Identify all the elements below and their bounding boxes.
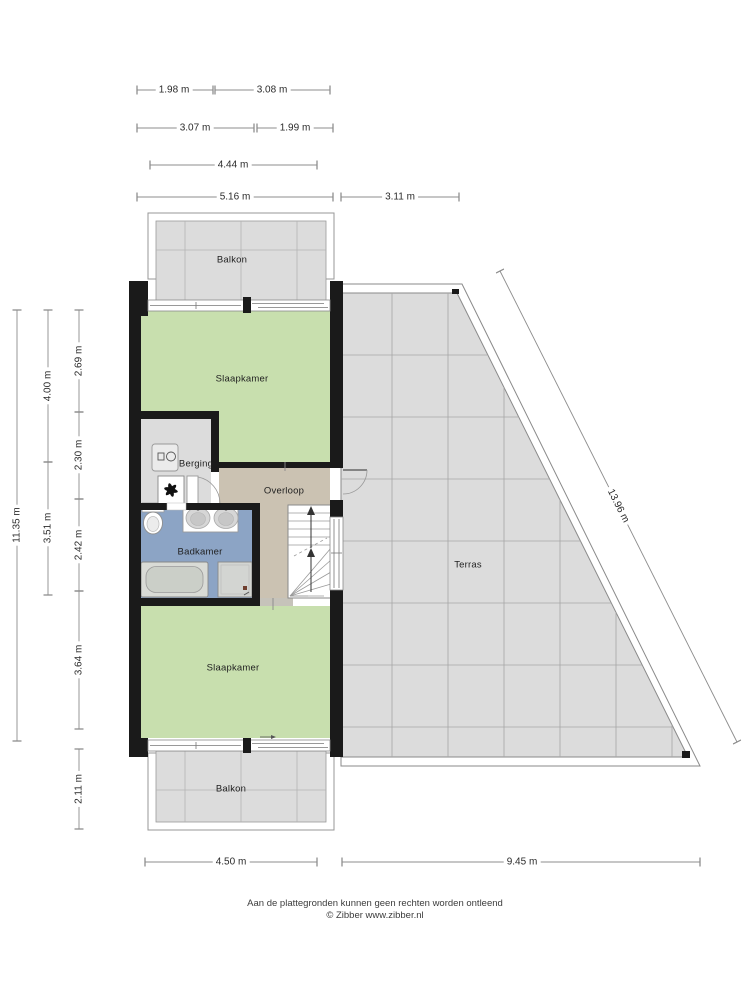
terras-area (341, 284, 700, 766)
dim-label: 3.08 m (254, 85, 291, 96)
room-label-terras: Terras (454, 560, 482, 571)
dim-label: 2.11 m (74, 771, 85, 807)
footer-credit: © Zibber www.zibber.nl (0, 910, 750, 921)
room-label-slaapkamer-bottom: Slaapkamer (207, 663, 260, 674)
footer-disclaimer: Aan de plattegronden kunnen geen rechten… (0, 898, 750, 909)
badkamer-door-opening (167, 503, 186, 510)
dim-label: 9.45 m (504, 857, 541, 868)
room-label-balkon-bottom: Balkon (216, 784, 246, 795)
room-label-berging: Berging (179, 459, 213, 470)
wall-badkamer-top (129, 503, 260, 510)
floorplan-drawing (0, 0, 750, 1000)
dim-label: 3.51 m (43, 510, 54, 547)
wall-badkamer-right (252, 503, 260, 606)
shower-icon (218, 562, 252, 597)
dim-label: 2.69 m (74, 343, 85, 380)
room-label-overloop: Overloop (264, 486, 304, 497)
terras-corner-post (682, 751, 690, 758)
dim-label: 4.44 m (215, 160, 252, 171)
dim-label: 2.42 m (74, 527, 85, 564)
dim-label: 2.30 m (74, 437, 85, 474)
room-label-badkamer: Badkamer (178, 547, 223, 558)
room-label-balkon-top: Balkon (217, 255, 247, 266)
ventilation-unit (158, 476, 184, 504)
dim-label: 4.50 m (213, 857, 250, 868)
wall-slaapkamer-bottom-top (129, 598, 258, 606)
window-stairwell (330, 517, 343, 590)
dim-label: 3.11 m (382, 192, 418, 203)
wall-berging-top (129, 411, 219, 419)
bathtub-icon (141, 562, 208, 597)
dim-label: 3.07 m (177, 123, 214, 134)
dim-label: 4.00 m (43, 368, 54, 405)
dim-label: 1.99 m (277, 123, 314, 134)
floorplan-page: Balkon Slaapkamer Berging Overloop Badka… (0, 0, 750, 1000)
door-threshold (258, 598, 293, 606)
dim-label: 1.98 m (156, 85, 193, 96)
terras-corner-post (452, 289, 459, 294)
dim-label: 3.64 m (74, 642, 85, 679)
wall-left (129, 281, 141, 757)
washing-machine-icon (152, 444, 178, 471)
room-label-slaapkamer-top: Slaapkamer (216, 374, 269, 385)
stairs-up-arrow-icon (288, 505, 331, 598)
wall-slaapkamer-top-bottom (219, 462, 330, 468)
wall-right (330, 281, 343, 468)
dim-label: 5.16 m (217, 192, 254, 203)
dim-label: 11.35 m (12, 504, 23, 545)
